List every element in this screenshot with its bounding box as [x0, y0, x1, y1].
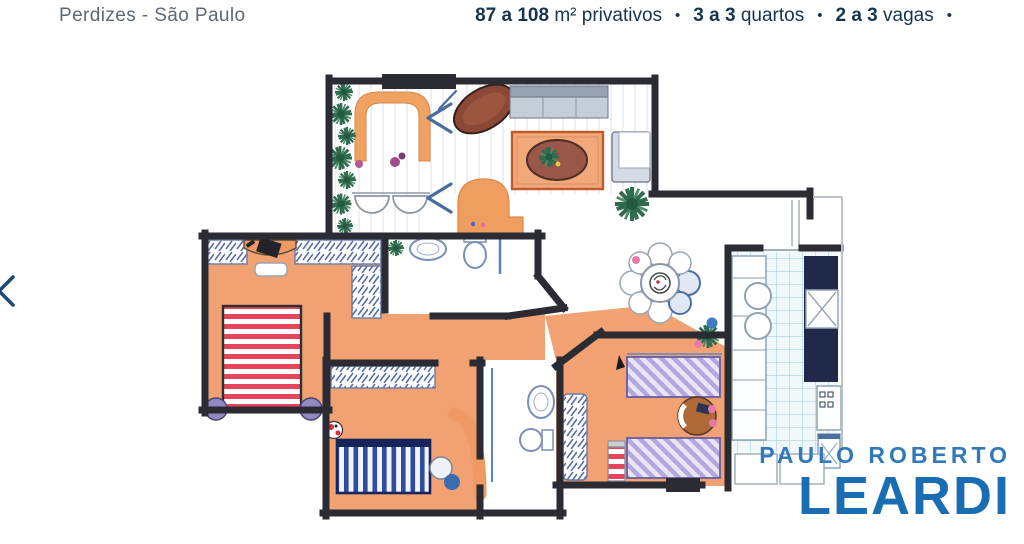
double-bed-red	[223, 306, 301, 409]
single-bed-blue	[337, 440, 430, 493]
kitchen-sink	[745, 313, 771, 339]
chevron-left-icon	[0, 271, 19, 311]
separator-dot: •	[817, 7, 822, 24]
spec-parking: 2 a 3 vagas	[835, 5, 933, 27]
floor-plan-image[interactable]	[192, 64, 852, 524]
flower-dot	[399, 153, 406, 160]
toilet-tank	[542, 430, 553, 450]
closet	[563, 394, 587, 480]
listing-location: Perdizes - São Paulo	[59, 5, 246, 27]
table-decor	[556, 162, 561, 167]
bathroom-sink	[410, 238, 446, 260]
single-bed-purple	[627, 357, 720, 397]
listing-specs: 87 a 108 m² privativos • 3 a 3 quartos •…	[475, 5, 952, 27]
sofa-back	[510, 86, 608, 97]
flower-dot	[355, 160, 363, 168]
flower-dot	[632, 256, 640, 264]
spec-parking-unit: vagas	[878, 5, 934, 26]
separator-dot: •	[947, 7, 952, 24]
blue-ball	[707, 318, 718, 329]
brand-watermark: PAULO ROBERTO LEARDI	[759, 444, 1011, 523]
dining-table-set	[620, 243, 700, 323]
closet	[206, 240, 247, 264]
spec-area-value: 87 a 108	[475, 5, 549, 26]
passage-lines	[792, 200, 799, 246]
striped-dresser	[608, 447, 625, 481]
spec-parking-value: 2 a 3	[835, 5, 877, 26]
separator-dot: •	[675, 7, 680, 24]
closet	[295, 240, 381, 264]
brand-name-main: LEARDI	[759, 469, 1011, 523]
room-bathroom-2	[492, 368, 554, 482]
closet	[352, 266, 381, 318]
spec-bedrooms-value: 3 a 3	[693, 5, 735, 26]
spec-bedrooms: 3 a 3 quartos	[693, 5, 804, 27]
closet	[331, 366, 435, 388]
kitchen-sink	[745, 283, 771, 309]
room-bathroom-1	[388, 234, 500, 274]
spec-area: 87 a 108 m² privativos	[475, 5, 662, 27]
flower-dot	[390, 157, 400, 167]
bathroom-sink	[528, 386, 554, 418]
sofa	[510, 97, 608, 118]
brand-name-top: PAULO ROBERTO	[759, 444, 1011, 467]
spec-bedrooms-unit: quartos	[736, 5, 805, 26]
toilet	[464, 242, 486, 268]
single-bed-purple	[627, 438, 720, 478]
armchair-seat	[619, 132, 650, 168]
carousel-prev-button[interactable]	[0, 271, 19, 311]
listing-gallery-page: Perdizes - São Paulo 87 a 108 m² privati…	[0, 0, 1024, 544]
toilet	[520, 429, 542, 451]
floor-plan-drawing	[192, 64, 852, 524]
entry-door-block	[382, 74, 456, 89]
round-nightstand	[678, 397, 716, 435]
desk-chair	[255, 263, 287, 276]
toy	[444, 474, 460, 490]
spec-area-unit: m² privativos	[549, 5, 662, 26]
flower-dot	[694, 340, 702, 348]
